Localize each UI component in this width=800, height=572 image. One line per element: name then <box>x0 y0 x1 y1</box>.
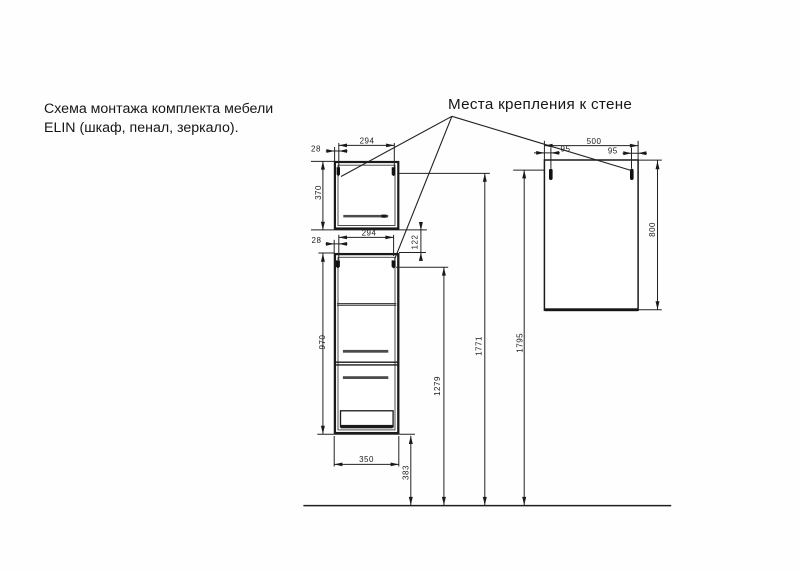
svg-text:800: 800 <box>648 222 657 237</box>
svg-text:122: 122 <box>410 235 419 250</box>
svg-text:294: 294 <box>360 137 375 146</box>
svg-text:383: 383 <box>402 465 411 480</box>
svg-text:95: 95 <box>561 145 571 154</box>
svg-text:1279: 1279 <box>433 376 442 396</box>
svg-text:28: 28 <box>311 144 321 153</box>
svg-text:Схема монтажа комплекта мебели: Схема монтажа комплекта мебели <box>44 101 273 117</box>
svg-text:370: 370 <box>314 185 323 200</box>
svg-text:Места крепления к стене: Места крепления к стене <box>448 96 632 113</box>
svg-text:350: 350 <box>359 455 374 464</box>
svg-text:1771: 1771 <box>474 336 483 356</box>
svg-text:500: 500 <box>587 137 602 146</box>
svg-text:294: 294 <box>362 229 377 238</box>
svg-text:95: 95 <box>608 146 618 155</box>
svg-text:1795: 1795 <box>516 333 525 353</box>
svg-text:ELIN (шкаф, пенал, зеркало).: ELIN (шкаф, пенал, зеркало). <box>44 120 239 136</box>
svg-text:28: 28 <box>312 236 322 245</box>
svg-text:970: 970 <box>318 335 327 350</box>
